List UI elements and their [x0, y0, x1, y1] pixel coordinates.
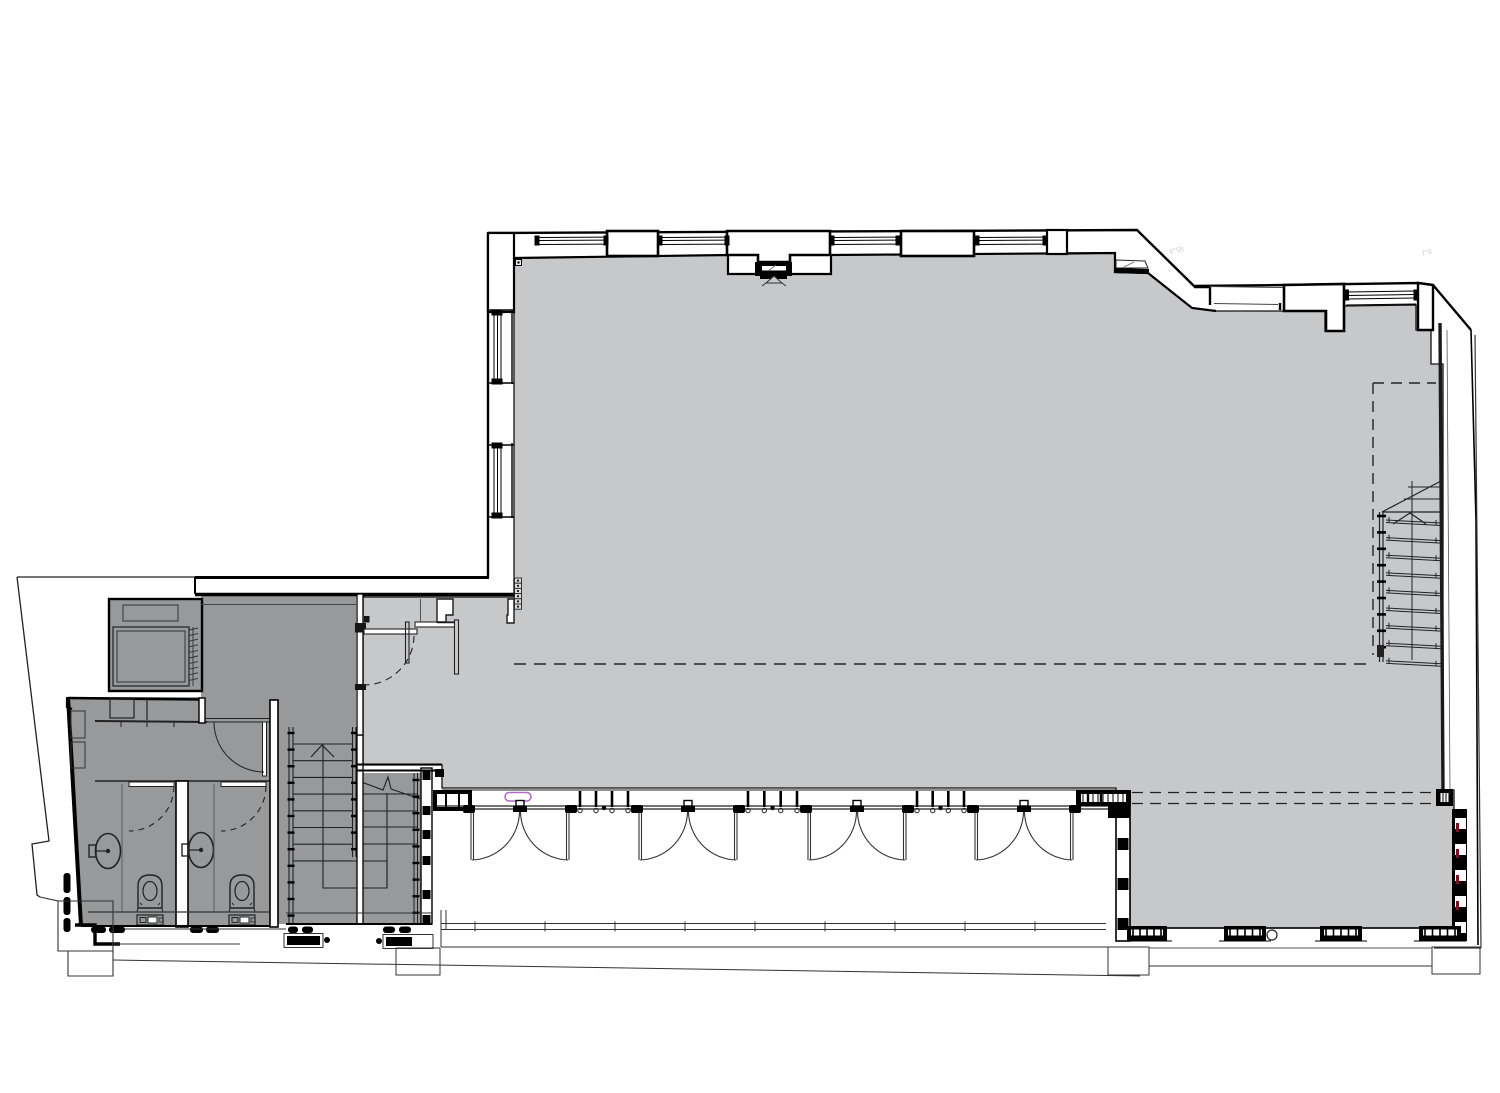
svg-text:7°6: 7°6	[1421, 248, 1433, 258]
svg-text:6°58: 6°58	[1169, 245, 1185, 256]
